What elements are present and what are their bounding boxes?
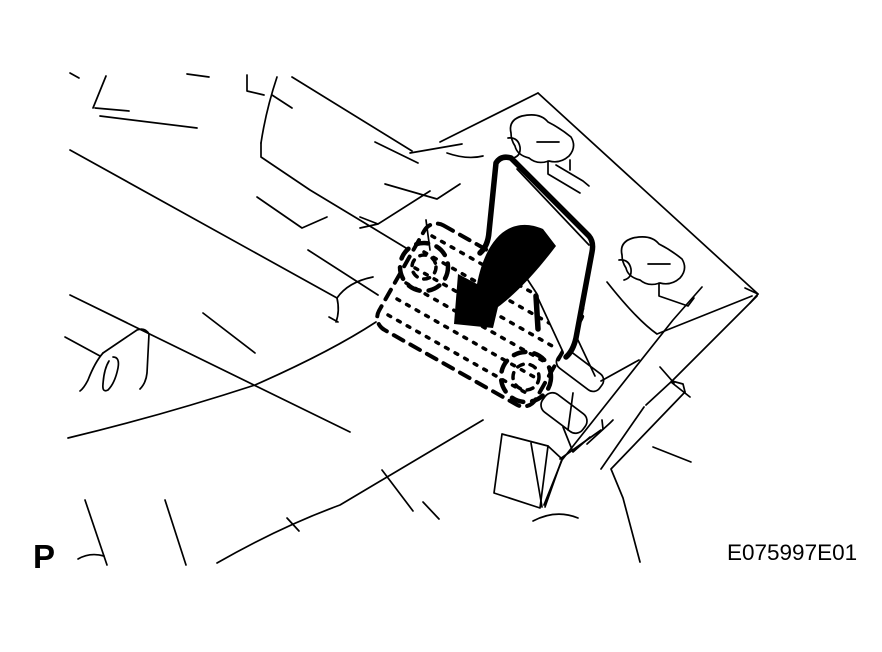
figure-id: E075997E01 bbox=[727, 540, 857, 566]
page-marker: P bbox=[33, 538, 55, 576]
fastener-circle-2 bbox=[501, 352, 551, 402]
floor-bracket bbox=[382, 420, 613, 521]
instrument-panel-beam bbox=[65, 150, 376, 438]
kick-panel bbox=[78, 420, 483, 565]
figure-canvas: P E075997E01 bbox=[0, 0, 882, 652]
bracket-tab-with-hole bbox=[80, 329, 149, 391]
panel-clip-lower bbox=[619, 237, 694, 306]
fastener-circle-1 bbox=[400, 243, 448, 291]
